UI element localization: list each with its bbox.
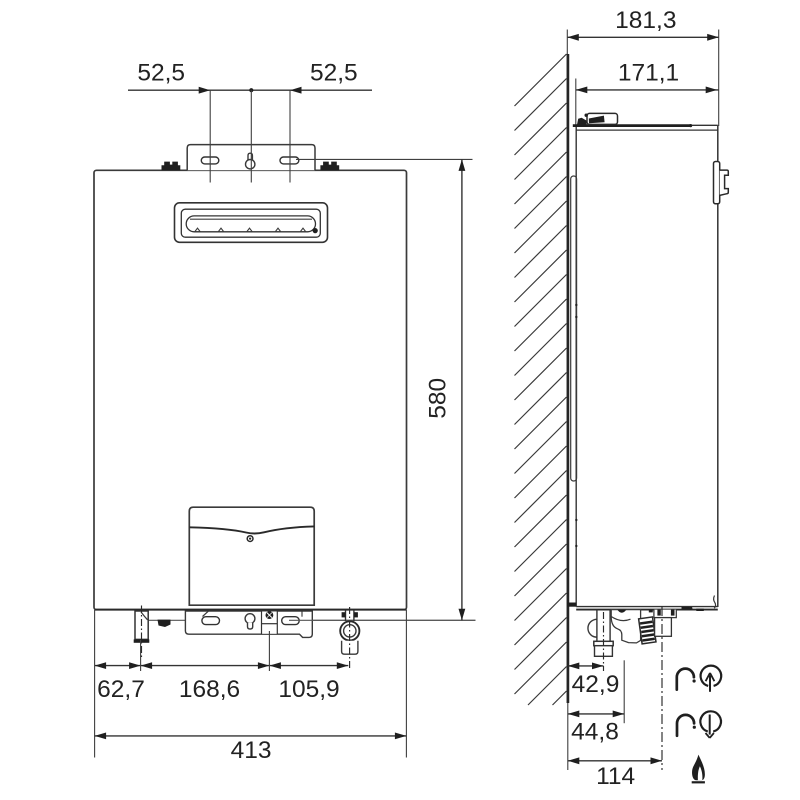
- svg-text:171,1: 171,1: [618, 60, 679, 87]
- svg-text:580: 580: [425, 378, 452, 419]
- svg-text:181,3: 181,3: [615, 7, 676, 34]
- svg-text:168,6: 168,6: [179, 676, 240, 703]
- svg-text:52,5: 52,5: [310, 60, 358, 87]
- svg-text:114: 114: [596, 763, 635, 790]
- svg-text:62,7: 62,7: [97, 676, 145, 703]
- svg-text:42,9: 42,9: [572, 671, 620, 698]
- svg-text:52,5: 52,5: [137, 60, 185, 87]
- svg-text:105,9: 105,9: [278, 676, 339, 703]
- svg-text:413: 413: [231, 737, 272, 764]
- svg-text:44,8: 44,8: [571, 719, 619, 746]
